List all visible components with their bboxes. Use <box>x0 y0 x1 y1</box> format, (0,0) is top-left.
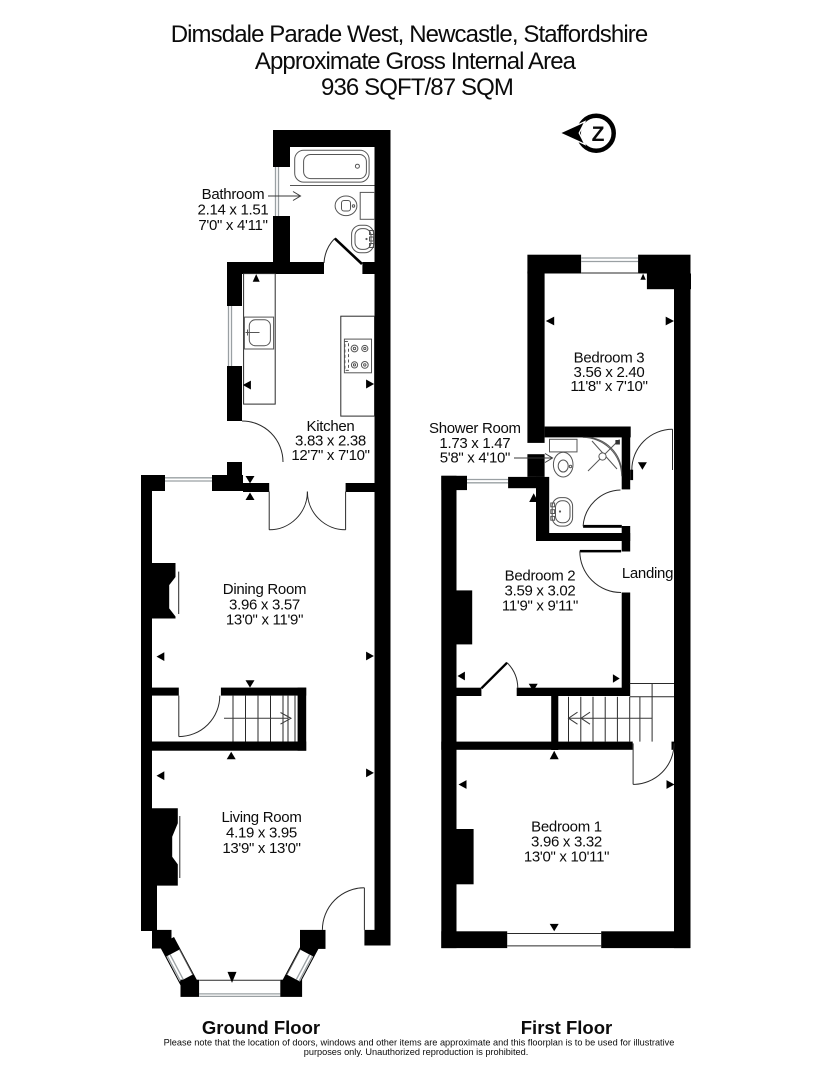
svg-text:11'8" x 7'10": 11'8" x 7'10" <box>570 378 647 395</box>
svg-text:First Floor: First Floor <box>521 1017 612 1038</box>
svg-text:Landing: Landing <box>622 565 673 582</box>
svg-text:11'9" x 9'11": 11'9" x 9'11" <box>502 598 578 615</box>
svg-text:13'0" x 10'11": 13'0" x 10'11" <box>524 848 609 865</box>
svg-text:13'9" x 13'0": 13'9" x 13'0" <box>222 840 300 857</box>
svg-text:936 SQFT/87 SQM: 936 SQFT/87 SQM <box>321 74 513 101</box>
svg-text:12'7" x 7'10": 12'7" x 7'10" <box>291 447 369 464</box>
svg-text:Approximate Gross Internal Are: Approximate Gross Internal Area <box>255 48 577 75</box>
svg-text:Z: Z <box>592 123 605 146</box>
svg-text:Please note that the location: Please note that the location of doors, … <box>164 1038 675 1048</box>
svg-text:Ground Floor: Ground Floor <box>202 1017 320 1038</box>
svg-text:5'8" x 4'10": 5'8" x 4'10" <box>440 450 510 467</box>
svg-text:purposes only. Unauthorized re: purposes only. Unauthorized reproduction… <box>304 1047 529 1057</box>
svg-text:13'0" x 11'9": 13'0" x 11'9" <box>226 612 303 629</box>
svg-text:Dimsdale Parade West, Newcastl: Dimsdale Parade West, Newcastle, Staffor… <box>171 21 648 48</box>
svg-text:7'0" x 4'11": 7'0" x 4'11" <box>198 217 267 234</box>
